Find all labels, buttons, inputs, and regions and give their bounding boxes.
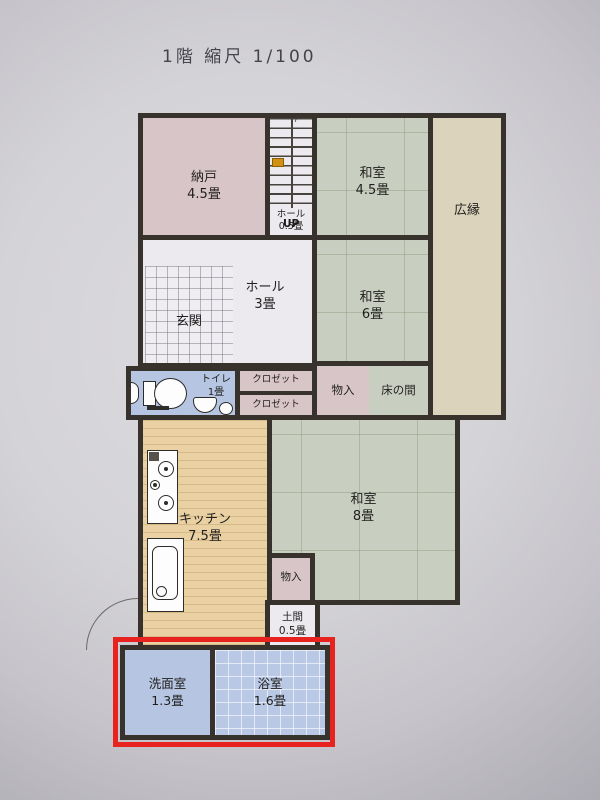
stove-grill-icon [149,452,159,461]
room-size: 8畳 [353,509,374,526]
room-size: 3畳 [225,297,305,314]
stove-icon [147,450,178,524]
room-monoire-upper: 物入 [312,361,374,420]
closet-divider-wall [235,391,317,395]
room-label: クロゼット [234,374,318,386]
floor-plan-photo: 1階 縮尺 1/100 納戸 4.5畳 ↑ ホール 0.5畳 UP 和室 4.5… [0,0,600,800]
toilet-bowl-icon [154,378,187,409]
room-label: 広縁 [454,203,480,220]
burner-icon [158,495,174,511]
room-hiroen: 広縁 [428,113,506,420]
hand-sink-icon [131,382,139,404]
room-label: 和室 [359,166,385,183]
room-kitchen: キッチン 7.5畳 [138,415,272,650]
wash-bowl-icon [219,402,233,415]
sink-drain-icon [156,586,167,597]
room-size: 4.5畳 [187,187,221,204]
room-size: 4.5畳 [356,183,390,200]
room-label: トイレ [201,373,231,386]
room-closets: クロゼット クロゼット [235,366,317,420]
room-size: 1畳 [201,386,231,399]
room-tokonoma: 床の間 [369,361,433,420]
highlight-red-box [113,637,335,747]
toilet-base-icon [147,406,169,410]
room-label: 和室 [350,492,376,509]
room-label: 土間 [282,611,303,625]
room-washitsu-4-5: 和室 4.5畳 [312,113,433,240]
room-label: 物入 [332,383,355,398]
burner-icon [150,480,160,490]
room-label: ホール [225,280,305,297]
page-title: 1階 縮尺 1/100 [162,42,317,67]
stairs-up-label: UP [283,218,299,230]
room-label: 物入 [281,571,302,585]
burner-icon [158,461,174,477]
room-label: クロゼット [234,399,318,411]
room-staircase: ↑ ホール 0.5畳 UP [265,113,317,240]
room-toilet: トイレ 1畳 [126,366,240,420]
kitchen-sink-icon [147,538,184,612]
room-label: 床の間 [381,383,416,398]
stair-marker-icon [272,158,284,167]
room-label: キッチン [179,512,231,529]
room-size: 7.5畳 [188,529,222,546]
stairs-center-line [291,118,293,208]
room-nando: 納戸 4.5畳 [138,113,270,240]
room-label: 玄関 [159,314,219,331]
room-washitsu-6: 和室 6畳 [312,235,433,367]
room-genkan-hall: 玄関 ホール 3畳 [138,235,317,368]
room-size: 6畳 [362,307,383,324]
room-label: 納戸 [191,170,217,187]
room-label: 和室 [359,290,385,307]
room-monoire-lower: 物入 [267,553,315,605]
washbasin-icon [193,397,217,413]
